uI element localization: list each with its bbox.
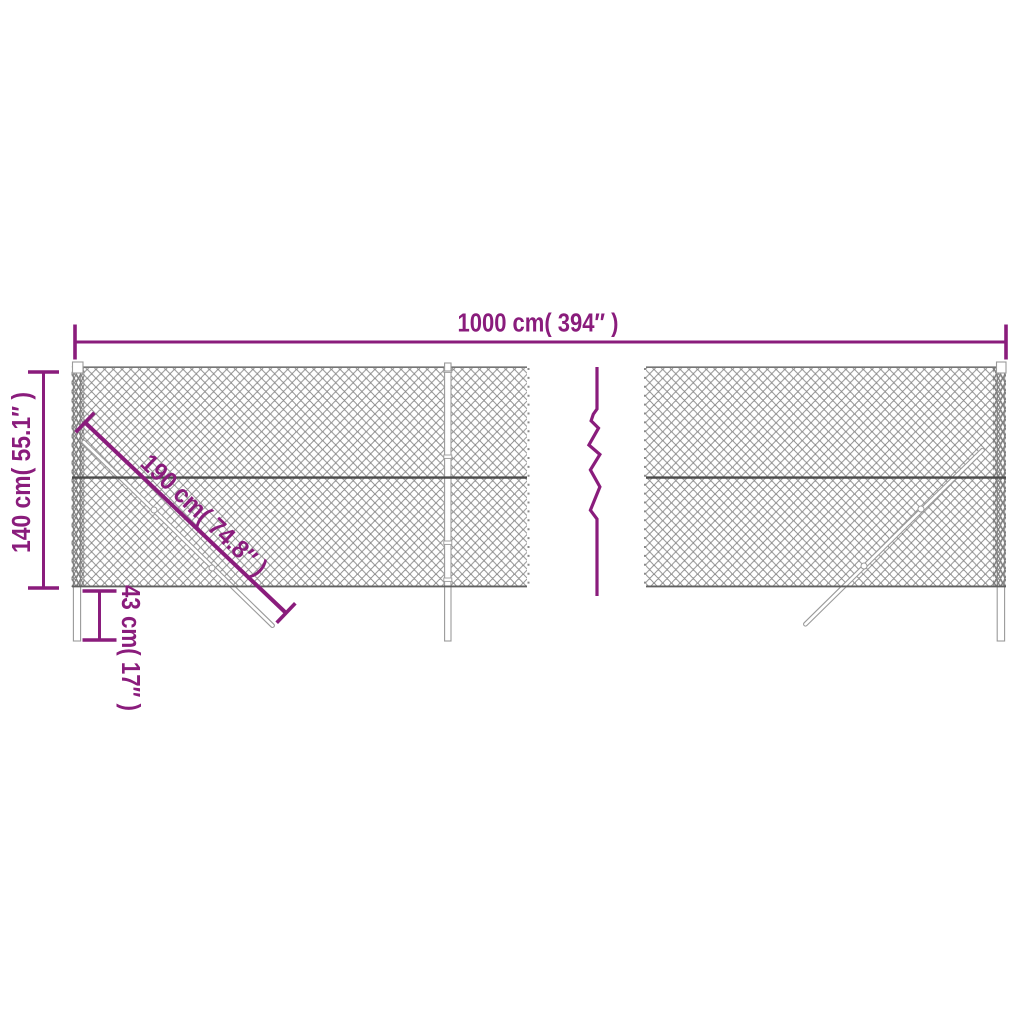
- svg-text:1000 cm( 394″ ): 1000 cm( 394″ ): [458, 310, 619, 338]
- svg-text:43 cm( 17″ ): 43 cm( 17″ ): [116, 585, 144, 711]
- svg-text:140 cm( 55.1″ ): 140 cm( 55.1″ ): [8, 392, 36, 553]
